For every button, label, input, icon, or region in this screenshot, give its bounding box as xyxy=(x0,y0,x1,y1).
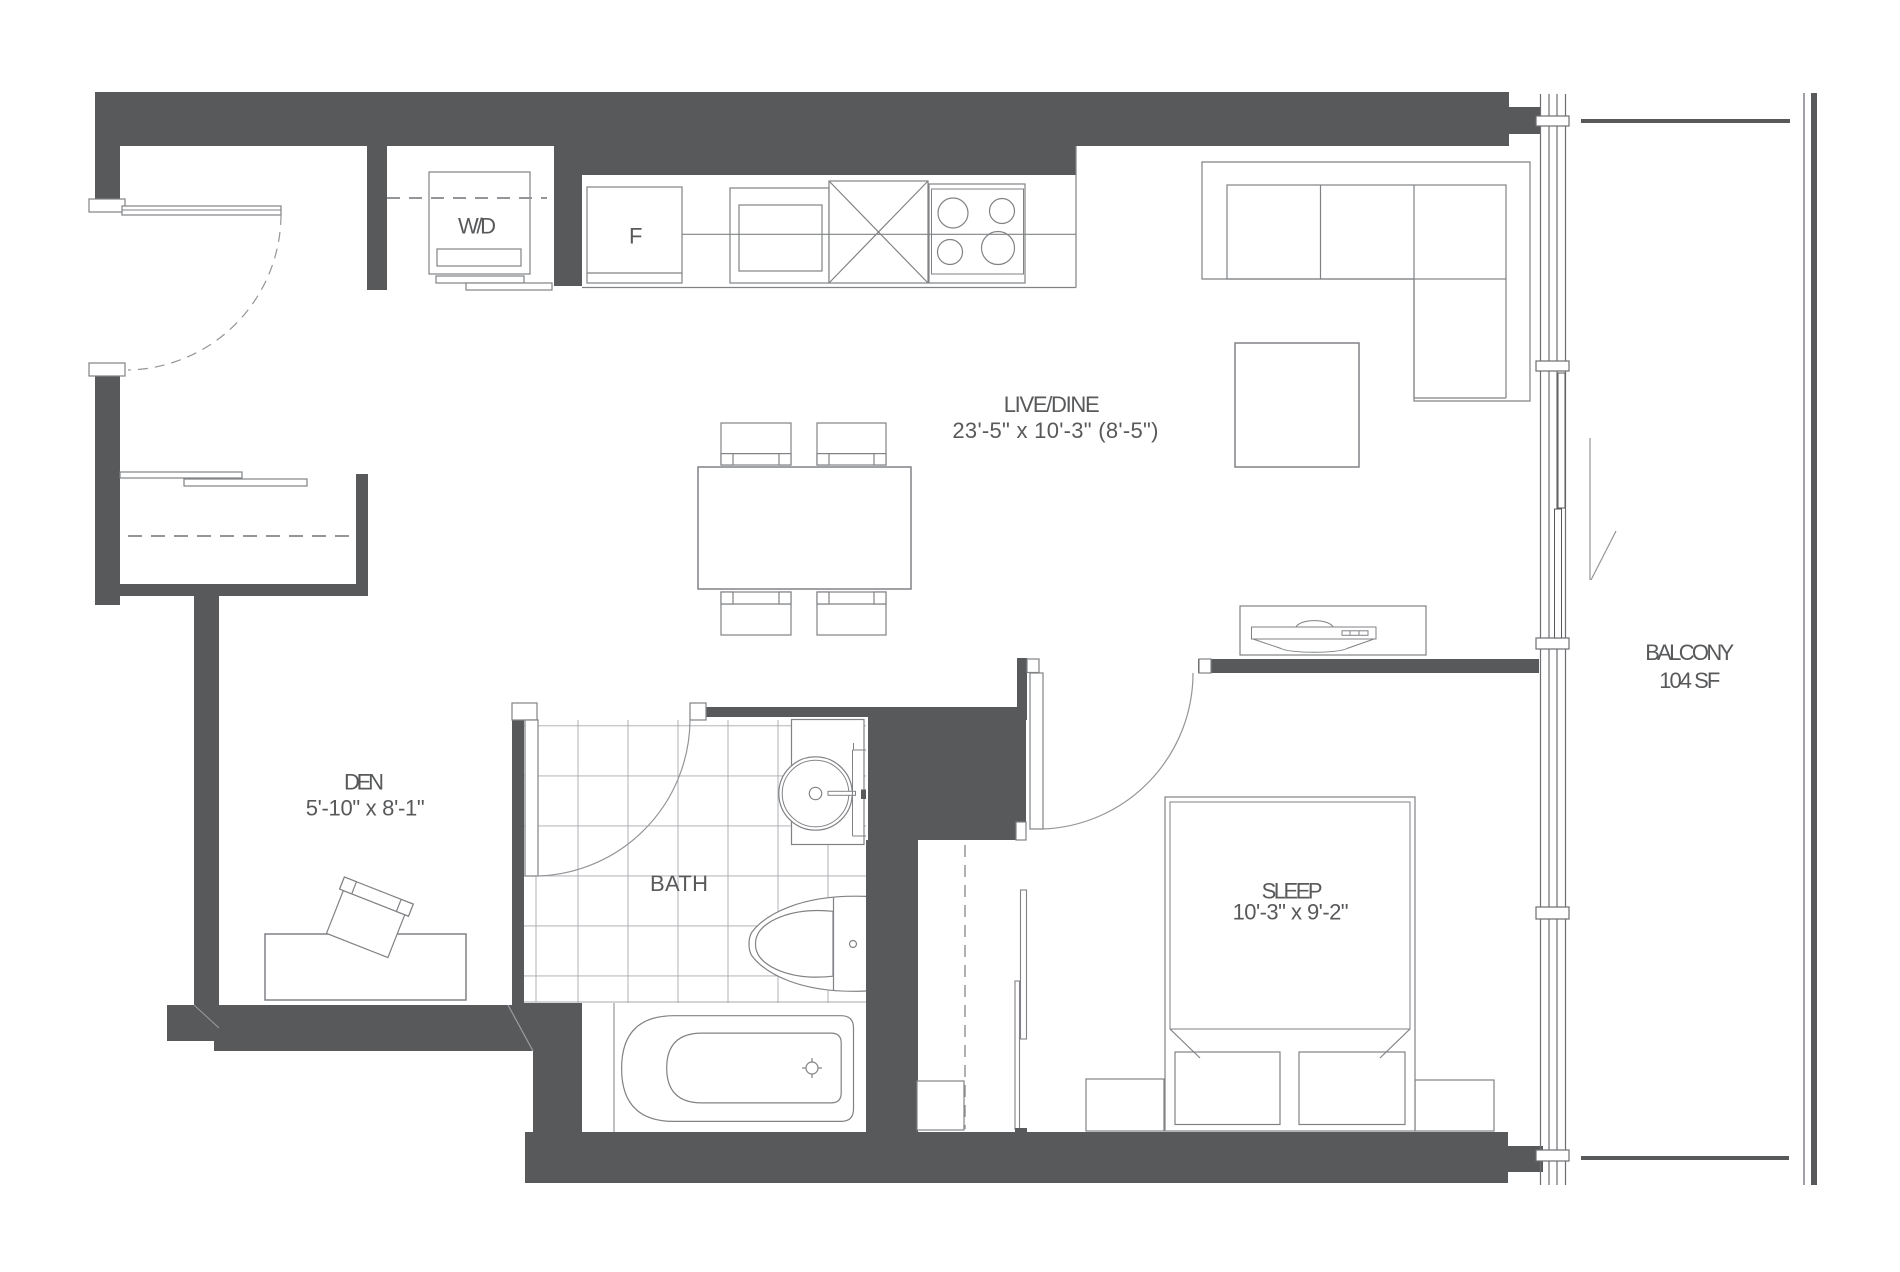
svg-text:W/D: W/D xyxy=(458,214,496,239)
svg-text:DEN: DEN xyxy=(344,770,384,795)
svg-text:23'-5" x 10'-3" (8'-5"): 23'-5" x 10'-3" (8'-5") xyxy=(952,418,1158,443)
svg-text:F: F xyxy=(629,224,642,249)
svg-text:104 SF: 104 SF xyxy=(1659,668,1720,693)
svg-text:BALCONY: BALCONY xyxy=(1645,640,1734,665)
svg-text:5'-10" x 8'-1": 5'-10" x 8'-1" xyxy=(306,796,425,821)
svg-text:10'-3" x 9'-2": 10'-3" x 9'-2" xyxy=(1233,900,1349,925)
svg-text:BATH: BATH xyxy=(650,871,708,896)
svg-text:LIVE/DINE: LIVE/DINE xyxy=(1004,392,1100,417)
